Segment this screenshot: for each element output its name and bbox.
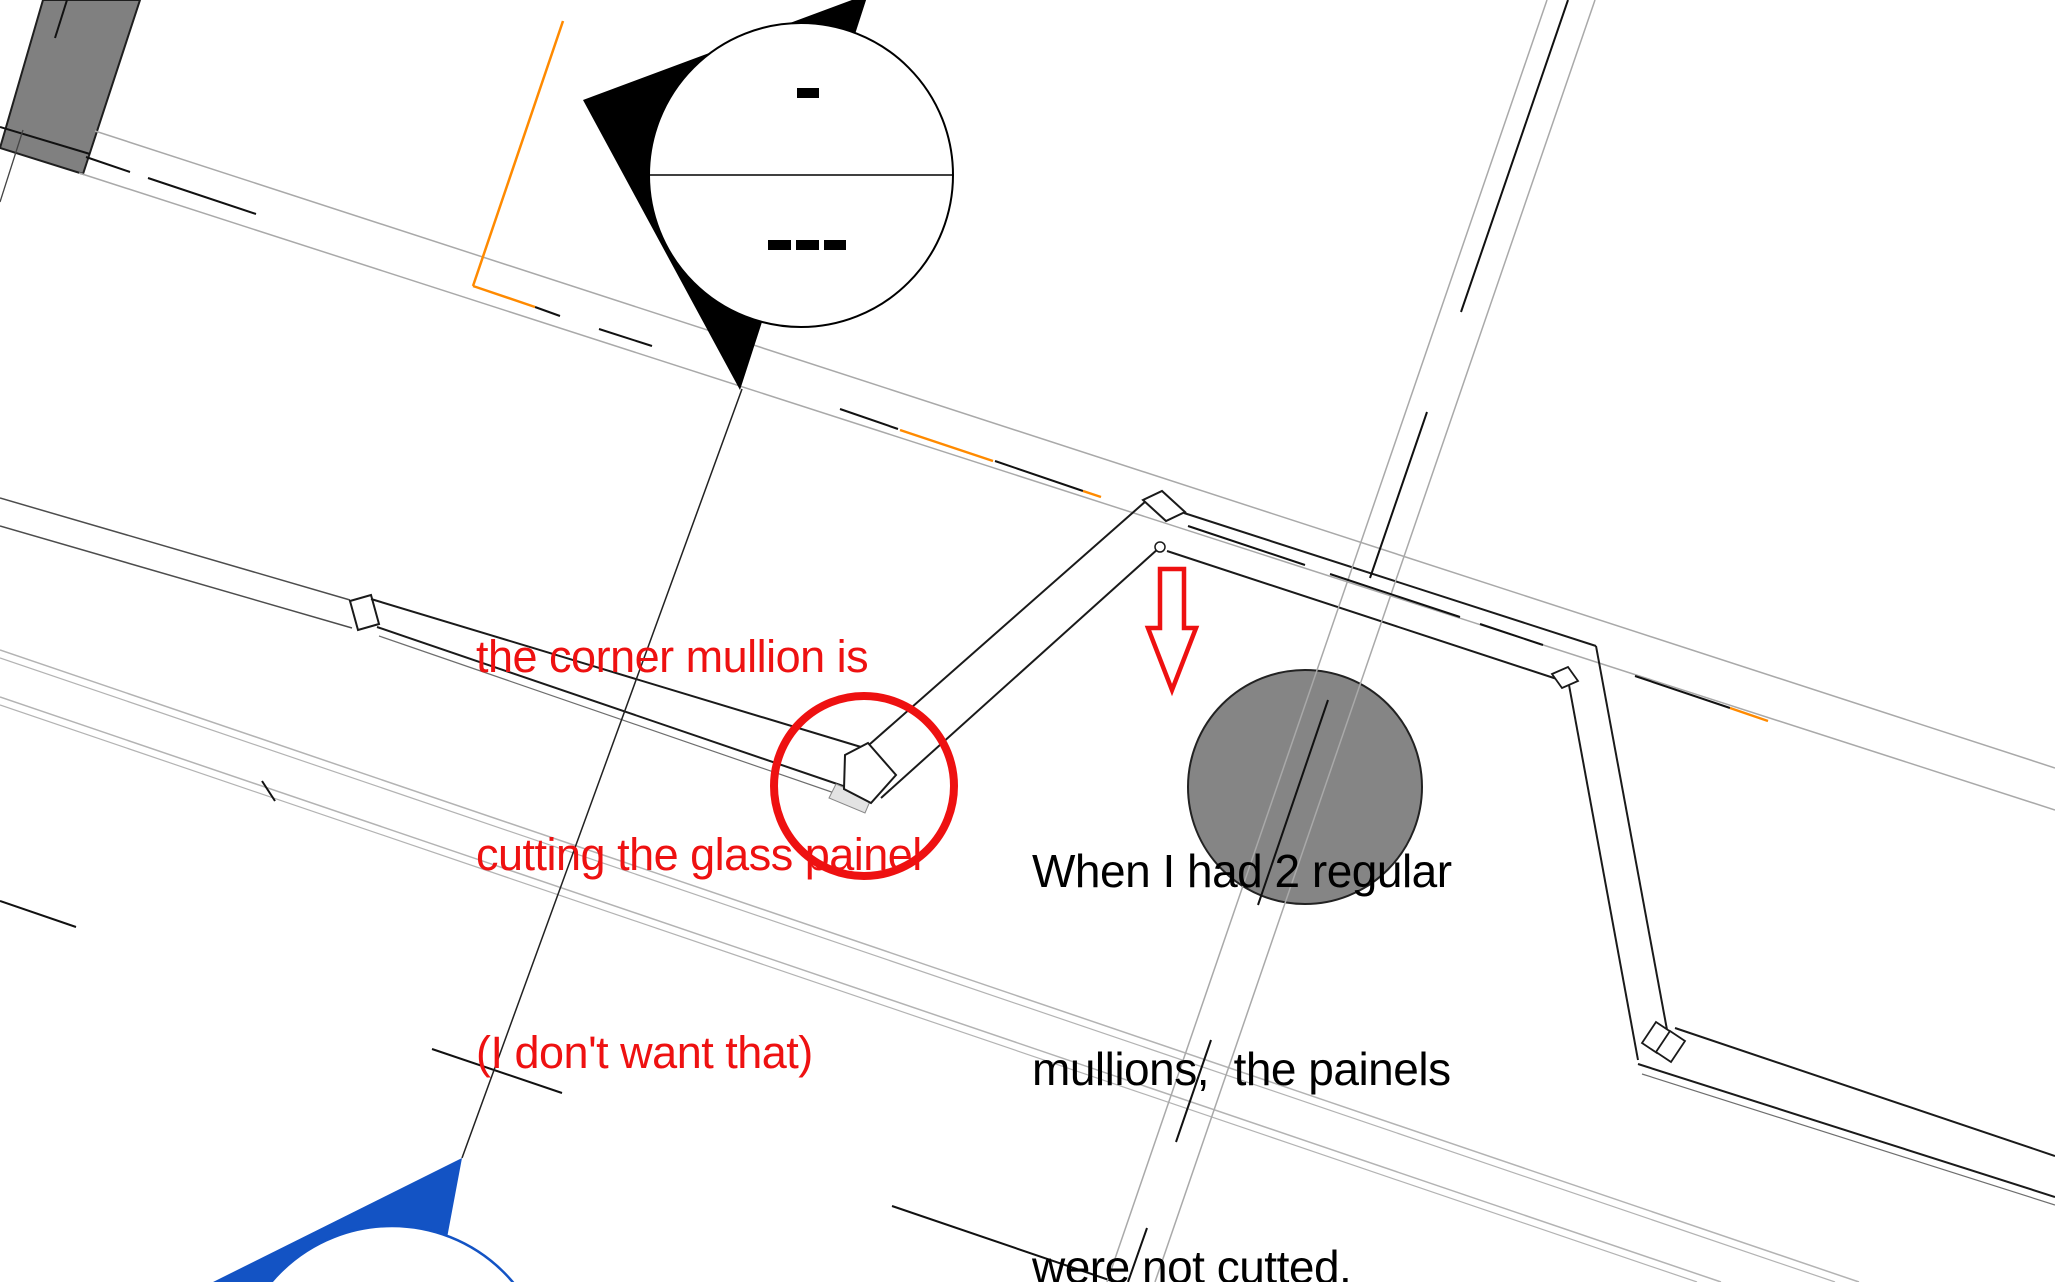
red-note-line-1: the corner mullion is [476,624,922,690]
curtain-wall-line [1184,513,1596,646]
wall-gray-line [95,131,2055,768]
centerline-dash [86,157,130,172]
centerline-dash [148,178,256,214]
wall-edge-line [0,526,352,628]
corner-vertex-dot [1155,542,1165,552]
grid-dash [1461,0,1568,312]
red-note-line-3: (I don't want that) [476,1020,922,1086]
wall-break-tick [262,781,275,801]
reference-orange-segment [900,430,993,461]
grid-dash [1370,412,1427,578]
detail-number-dash [797,88,819,98]
reference-orange-segment [1083,491,1101,497]
centerline-dash [995,461,1083,491]
sheet-number-dash [768,240,791,250]
centerline-dash [0,901,76,927]
curtain-wall-line [1569,685,1638,1060]
black-note-line-3: were not cutted. [1032,1234,1452,1282]
sheet-number-dash [796,240,819,250]
centerline-dash [535,307,560,316]
cad-viewport[interactable]: the corner mullion is cutting the glass … [0,0,2055,1282]
centerline-dash [840,409,898,429]
curtain-wall-line [1642,1074,2055,1205]
mullion-square [1552,667,1578,688]
mullion-square [1143,491,1185,521]
reference-orange-segment [473,286,535,307]
reference-orange-segment [1730,708,1768,721]
drawing-canvas[interactable] [0,0,2055,1282]
red-note-line-2: cutting the glass painel [476,822,922,888]
sheet-number-dash [824,240,846,250]
red-arrow-icon [1148,569,1196,690]
annotation-red-note: the corner mullion is cutting the glass … [476,492,922,1218]
reference-orange-segment [473,21,563,286]
curtain-wall-line [1638,1064,2055,1197]
black-note-line-1: When I had 2 regular [1032,838,1452,904]
centerline-dash [1480,624,1543,645]
centerline-dash [1635,676,1730,708]
annotation-black-note: When I had 2 regular mullions, the paine… [1032,706,1452,1282]
black-note-line-2: mullions, the painels [1032,1036,1452,1102]
curtain-wall-line [1596,646,1670,1046]
wall-edge-line [0,498,350,600]
